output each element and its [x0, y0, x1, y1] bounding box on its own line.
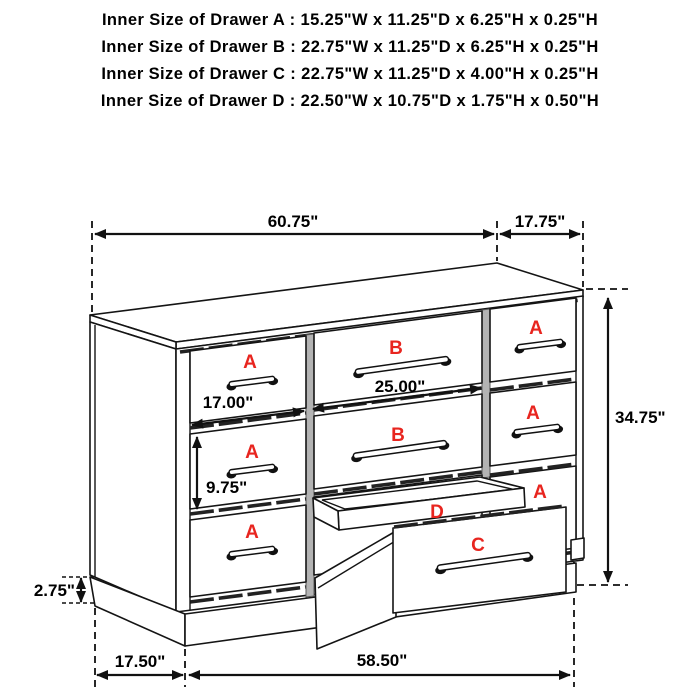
dim-label-b-width: 25.00" — [375, 377, 426, 396]
dim-label-top-depth: 17.75" — [515, 212, 566, 231]
dimension-base-depth: 17.50" — [97, 652, 183, 675]
dim-label-a-height: 9.75" — [206, 478, 247, 497]
dim-label-base-depth: 17.50" — [115, 652, 166, 671]
dimension-height: 34.75" — [608, 298, 666, 582]
label-drawer-a: A — [533, 482, 547, 503]
label-drawer-a: A — [529, 318, 543, 339]
dresser-dimension-diagram: Inner Size of Drawer A : 15.25"W x 11.25… — [0, 0, 700, 700]
right-foot — [571, 538, 584, 560]
label-drawer-d: D — [430, 502, 444, 523]
label-drawer-c: C — [471, 535, 485, 556]
drawer-face-a1-right — [490, 298, 576, 382]
divider-right — [482, 309, 490, 478]
dim-label-a-width: 17.00" — [203, 393, 254, 412]
label-drawer-b: B — [389, 338, 403, 359]
label-drawer-a: A — [526, 403, 540, 424]
dimension-base-height: 2.75" — [34, 578, 81, 602]
dimension-base-width: 58.50" — [189, 651, 570, 675]
cabinet-left-side-panel — [90, 322, 176, 612]
dresser-line-drawing: A A A B B A A A D C 60.75" 17.75" 34.75"… — [0, 0, 700, 700]
label-drawer-a: A — [243, 352, 257, 373]
label-drawer-a: A — [245, 442, 259, 463]
dim-label-base-width: 58.50" — [357, 651, 408, 670]
drawer-face-a2-right — [490, 382, 576, 466]
dim-label-base-height: 2.75" — [34, 581, 75, 600]
dim-label-top-width: 60.75" — [268, 212, 319, 231]
dimension-top-width: 60.75" — [95, 212, 494, 234]
dim-label-height: 34.75" — [615, 408, 666, 427]
divider-left — [306, 334, 314, 597]
label-drawer-b: B — [391, 425, 405, 446]
label-drawer-a: A — [245, 522, 259, 543]
dimension-top-depth: 17.75" — [500, 212, 580, 234]
